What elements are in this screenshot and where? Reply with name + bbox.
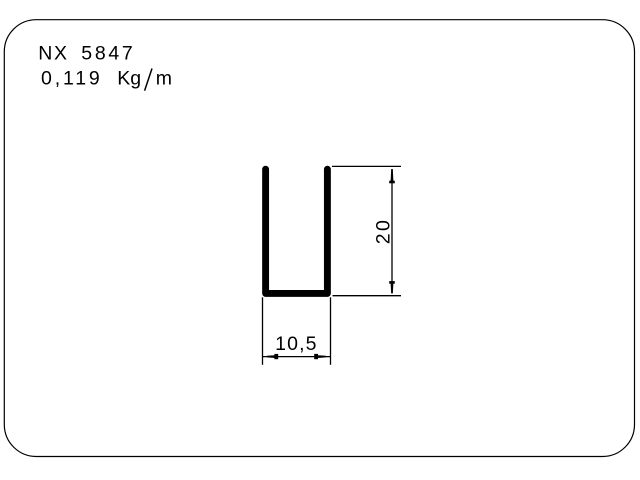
svg-text:5847: 5847 (81, 43, 135, 65)
svg-text:0,119: 0,119 (41, 68, 103, 90)
svg-text:20: 20 (372, 218, 394, 245)
svg-text:m: m (156, 68, 175, 90)
svg-text:NX: NX (38, 43, 68, 65)
svg-text:10,5: 10,5 (275, 333, 318, 355)
svg-text:Kg: Kg (117, 68, 141, 90)
